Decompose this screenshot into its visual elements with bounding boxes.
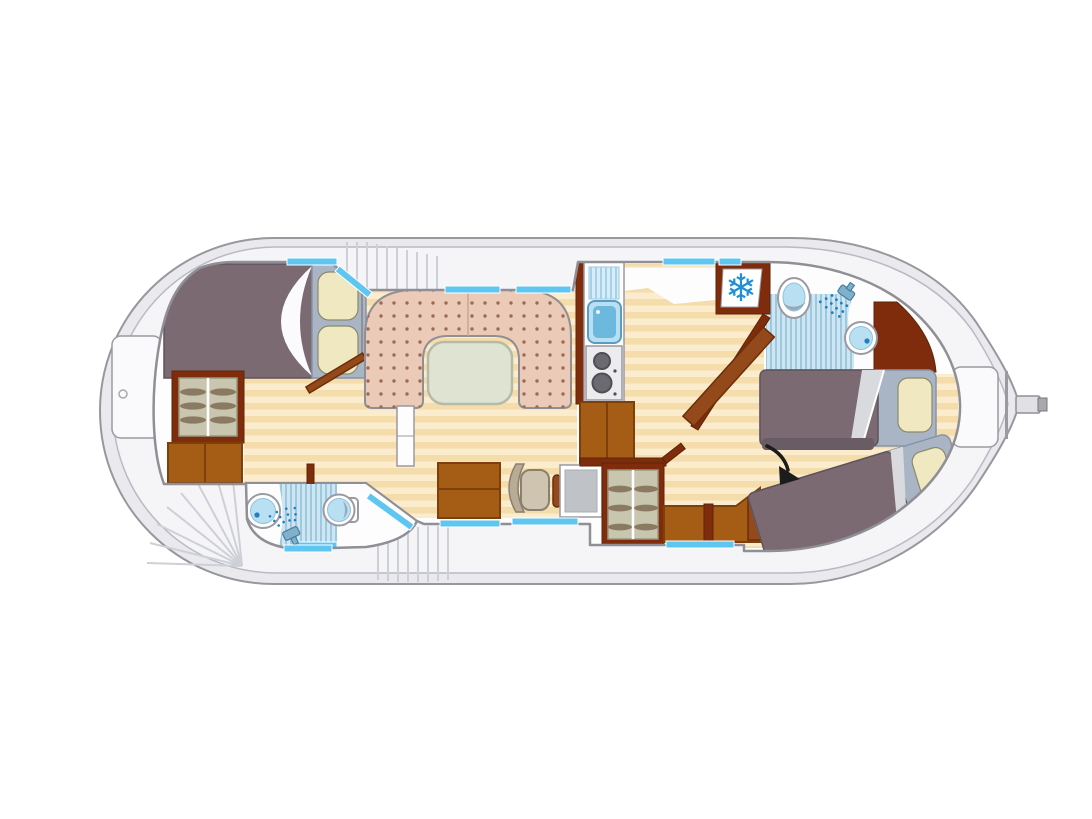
salon-cabinet bbox=[397, 406, 414, 466]
aft-double-bed bbox=[164, 264, 366, 378]
window bbox=[516, 286, 571, 293]
fwd-bathroom-sink bbox=[778, 278, 810, 318]
snowflake-icon: ❄ bbox=[725, 266, 757, 310]
galley-stove bbox=[586, 346, 622, 400]
galley-drainboard bbox=[589, 267, 619, 299]
bowsprit bbox=[1016, 396, 1040, 413]
cabin-interior: ❄ bbox=[140, 250, 980, 563]
bow-bed-upper bbox=[760, 370, 936, 450]
window bbox=[284, 545, 332, 552]
floor-plan-canvas: ❄ bbox=[0, 0, 1092, 819]
galley-wall bbox=[576, 262, 584, 404]
window bbox=[666, 541, 734, 548]
helm-seat bbox=[509, 464, 549, 512]
dinette-table bbox=[428, 342, 512, 404]
galley-sink bbox=[588, 301, 621, 343]
aft-cabinet bbox=[168, 443, 242, 483]
window bbox=[719, 258, 741, 265]
aft-cabin-floor bbox=[244, 372, 364, 483]
boat-floor-plan: ❄ bbox=[0, 0, 1092, 819]
fridge: ❄ bbox=[716, 262, 770, 314]
helm-console bbox=[560, 465, 602, 517]
aft-bathroom-wall-stub bbox=[307, 464, 314, 485]
helm-bench bbox=[438, 463, 500, 518]
bowsprit-cap bbox=[1038, 398, 1047, 411]
aft-bathroom-sink bbox=[246, 494, 280, 528]
aft-wardrobe bbox=[172, 371, 244, 443]
fwd-bathroom-toilet bbox=[845, 322, 877, 354]
galley-cabinet bbox=[580, 402, 634, 464]
window bbox=[287, 258, 337, 265]
bow-trim-line bbox=[1005, 371, 1008, 439]
aft-bathroom-toilet bbox=[324, 495, 359, 526]
window bbox=[445, 286, 500, 293]
bed-side bbox=[762, 438, 874, 450]
window bbox=[512, 518, 578, 525]
window bbox=[440, 520, 500, 527]
window bbox=[663, 258, 715, 265]
